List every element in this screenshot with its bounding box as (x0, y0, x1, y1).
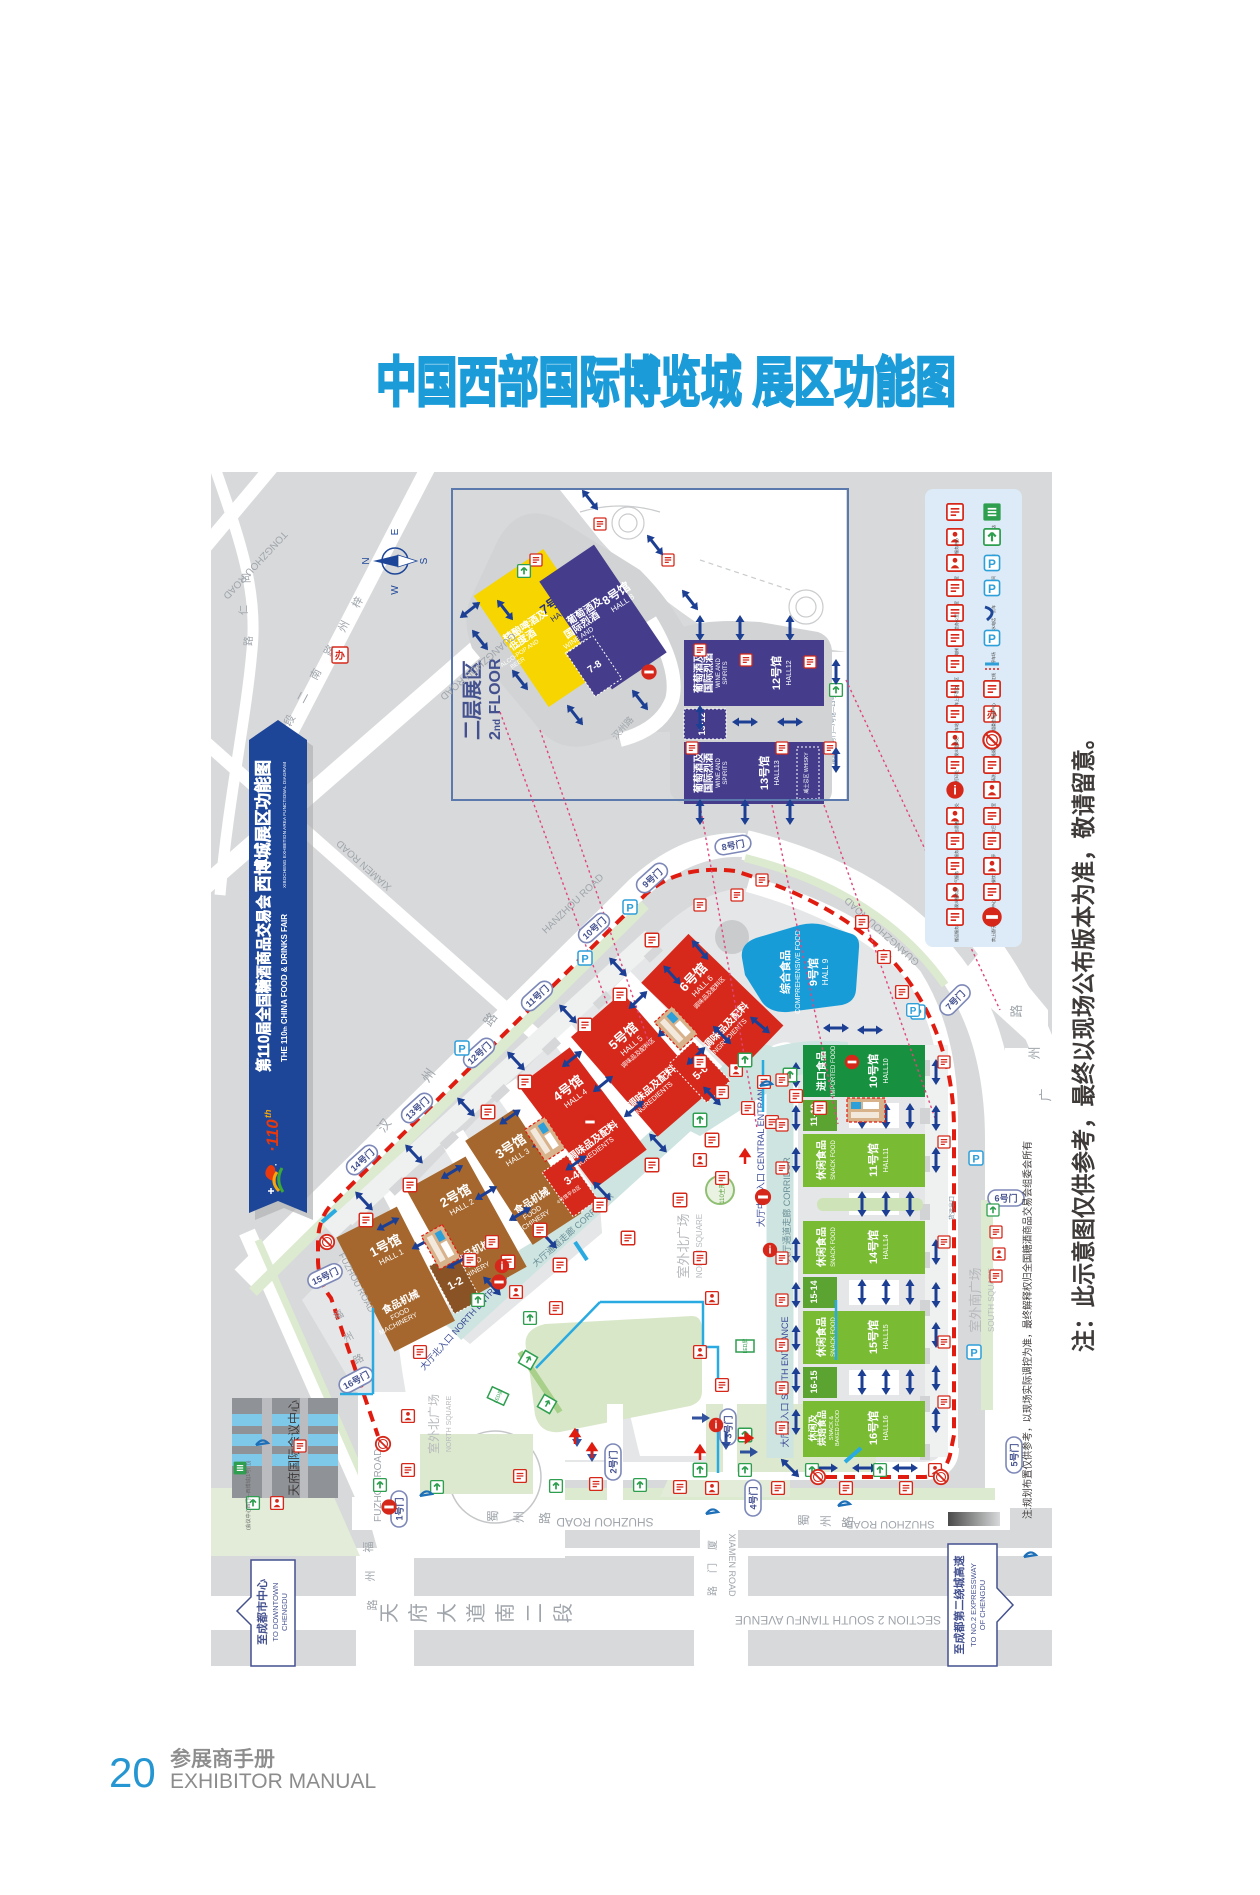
svg-text:SPIRITS: SPIRITS (723, 761, 729, 784)
svg-text:国际烈酒: 国际烈酒 (702, 653, 715, 693)
svg-text:16号馆: 16号馆 (866, 1411, 880, 1445)
svg-text:20: 20 (109, 1749, 156, 1796)
svg-text:进口食品: 进口食品 (815, 1051, 828, 1091)
svg-text:S: S (419, 557, 430, 564)
svg-text:休闲食品: 休闲食品 (815, 1227, 828, 1268)
svg-text:LED屏: LED屏 (743, 1339, 749, 1354)
svg-text:至成都第二绕城高速: 至成都第二绕城高速 (952, 1556, 966, 1655)
svg-text:XIBOCHENG EXHIBITION AREA FUNC: XIBOCHENG EXHIBITION AREA FUNCTIONAL DIA… (282, 762, 287, 888)
svg-text:厦: 厦 (707, 1540, 719, 1550)
svg-text:西博城展区功能图: 西博城展区功能图 (253, 760, 273, 892)
svg-text:·110: ·110 (263, 1119, 282, 1152)
svg-text:13号馆: 13号馆 (757, 756, 771, 790)
svg-text:搬运服务: 搬运服务 (953, 926, 959, 942)
svg-text:15-14: 15-14 (809, 1280, 819, 1303)
svg-text:第110届全国糖酒商品交易会: 第110届全国糖酒商品交易会 (254, 895, 273, 1072)
svg-text:SNACK FOOD: SNACK FOOD (831, 1226, 837, 1266)
svg-text:室外北广场: 室外北广场 (426, 1394, 441, 1454)
svg-text:国际烈酒: 国际烈酒 (702, 753, 715, 793)
svg-text:TO DOWNTOWN: TO DOWNTOWN (271, 1583, 280, 1642)
svg-text:E: E (390, 528, 401, 535)
svg-text:SHUZHOU ROAD: SHUZHOU ROAD (556, 1515, 654, 1529)
svg-text:15号馆: 15号馆 (866, 1320, 880, 1354)
svg-text:停车场: 停车场 (990, 652, 996, 664)
svg-text:2号门: 2号门 (608, 1450, 619, 1473)
svg-text:州: 州 (1027, 1046, 1042, 1059)
svg-text:W: W (390, 585, 401, 595)
svg-text:OF CHENGDU: OF CHENGDU (978, 1580, 987, 1630)
svg-text:HALL10: HALL10 (883, 1058, 890, 1083)
svg-text:州: 州 (365, 1571, 377, 1582)
svg-text:路: 路 (537, 1512, 552, 1524)
svg-text:注：此示意图仅供参考，最终以现场公布版本为准，敬请留意。: 注：此示意图仅供参考，最终以现场公布版本为准，敬请留意。 (1071, 727, 1098, 1352)
svg-text:烘焙食品: 烘焙食品 (816, 1410, 827, 1446)
svg-text:门: 门 (706, 1563, 719, 1573)
svg-text:SNACK FOOD: SNACK FOOD (831, 1139, 837, 1179)
svg-text:WINE AND: WINE AND (716, 658, 722, 688)
svg-text:SHUZHOU ROAD: SHUZHOU ROAD (845, 1518, 934, 1530)
svg-text:路: 路 (1009, 1004, 1024, 1017)
svg-text:休闲食品: 休闲食品 (815, 1140, 828, 1181)
svg-text:禁止通行: 禁止通行 (990, 926, 996, 942)
svg-text:EXHIBITOR MANUAL: EXHIBITOR MANUAL (170, 1770, 376, 1793)
svg-text:州: 州 (512, 1511, 526, 1523)
svg-text:16-15: 16-15 (809, 1370, 819, 1393)
svg-text:THE 110th CHINA FOOD & DRINKS: THE 110th CHINA FOOD & DRINKS FAIR (280, 914, 289, 1062)
svg-text:SPIRITS: SPIRITS (723, 661, 729, 684)
svg-text:CHENGDU: CHENGDU (280, 1593, 289, 1631)
svg-text:注:规划布置仅供参考，以现场实际调控为准，最终解释权归全国糖: 注:规划布置仅供参考，以现场实际调控为准，最终解释权归全国糖酒商品交易会组委会所… (1021, 1141, 1034, 1519)
svg-text:BAKED FOOD: BAKED FOOD (835, 1410, 841, 1446)
svg-text:二: 二 (524, 1603, 546, 1623)
svg-text:威士忌区 WHISKY: 威士忌区 WHISKY (803, 752, 810, 794)
svg-text:IMPORTED FOOD: IMPORTED FOOD (831, 1045, 837, 1096)
svg-text:(会议中心西门—西博城(1号门)): (会议中心西门—西博城(1号门)) (245, 1460, 252, 1530)
svg-text:TO NO.2 EXPRESSWAY: TO NO.2 EXPRESSWAY (969, 1563, 978, 1647)
svg-text:参展商手册: 参展商手册 (170, 1748, 275, 1771)
svg-text:州: 州 (819, 1515, 833, 1527)
svg-text:12号馆: 12号馆 (769, 656, 783, 690)
svg-text:5号门: 5号门 (1009, 1443, 1020, 1466)
svg-text:HALL14: HALL14 (883, 1234, 890, 1259)
svg-text:同: 同 (241, 573, 253, 583)
svg-text:HALL 9: HALL 9 (821, 958, 830, 985)
svg-text:道: 道 (465, 1603, 488, 1623)
svg-text:NORTH SQUARE: NORTH SQUARE (446, 1396, 453, 1453)
svg-text:路: 路 (706, 1586, 719, 1596)
svg-text:HALL12: HALL12 (786, 660, 793, 685)
svg-text:蜀: 蜀 (797, 1514, 811, 1526)
svg-text:段: 段 (552, 1603, 575, 1623)
svg-text:COMPREHENSIVE FOOD: COMPREHENSIVE FOOD (795, 930, 802, 1014)
svg-text:办: 办 (335, 649, 345, 662)
svg-text:4号门: 4号门 (748, 1486, 759, 1509)
svg-text:10号馆: 10号馆 (866, 1054, 880, 1088)
svg-text:HALL13: HALL13 (774, 760, 781, 785)
svg-text:大: 大 (436, 1603, 459, 1623)
svg-text:XIAMEN ROAD: XIAMEN ROAD (727, 1533, 737, 1597)
svg-text:府: 府 (407, 1603, 430, 1623)
svg-text:N: N (361, 557, 372, 564)
svg-text:福: 福 (361, 1542, 375, 1553)
svg-text:中国西部国际博览城 展区功能图: 中国西部国际博览城 展区功能图 (376, 353, 956, 413)
svg-text:th: th (263, 1109, 273, 1118)
svg-text:仁: 仁 (238, 605, 250, 615)
svg-text:NORTH SQUARE: NORTH SQUARE (695, 1214, 704, 1278)
svg-text:9号馆: 9号馆 (806, 958, 820, 986)
svg-text:室外北广场: 室外北广场 (676, 1213, 691, 1278)
svg-text:HALL11: HALL11 (883, 1148, 890, 1173)
svg-text:路: 路 (242, 636, 255, 646)
svg-text:14号馆: 14号馆 (866, 1230, 880, 1264)
svg-text:3号门: 3号门 (723, 1415, 734, 1438)
svg-text:货运出口: 货运出口 (948, 1196, 956, 1220)
svg-text:HALL16: HALL16 (883, 1415, 890, 1440)
svg-text:SECTION 2 SOUTH TIANFU AVENUE: SECTION 2 SOUTH TIANFU AVENUE (735, 1613, 941, 1627)
svg-text:综合食品: 综合食品 (778, 950, 792, 994)
svg-text:蜀: 蜀 (486, 1510, 500, 1522)
svg-text:·: · (271, 1163, 281, 1166)
svg-text:南: 南 (494, 1603, 517, 1623)
svg-text:6号门: 6号门 (994, 1193, 1017, 1204)
svg-text:天: 天 (379, 1603, 401, 1623)
svg-text:11号馆: 11号馆 (866, 1143, 880, 1177)
svg-text:室外南广场: 室外南广场 (968, 1267, 983, 1332)
svg-text:休闲食品: 休闲食品 (815, 1317, 828, 1358)
svg-text:HALL15: HALL15 (883, 1324, 890, 1349)
svg-text:WINE AND: WINE AND (716, 758, 722, 788)
svg-text:至成都市中心: 至成都市中心 (255, 1579, 269, 1645)
svg-text:广: 广 (1038, 1088, 1053, 1101)
svg-text:路: 路 (366, 1600, 379, 1611)
